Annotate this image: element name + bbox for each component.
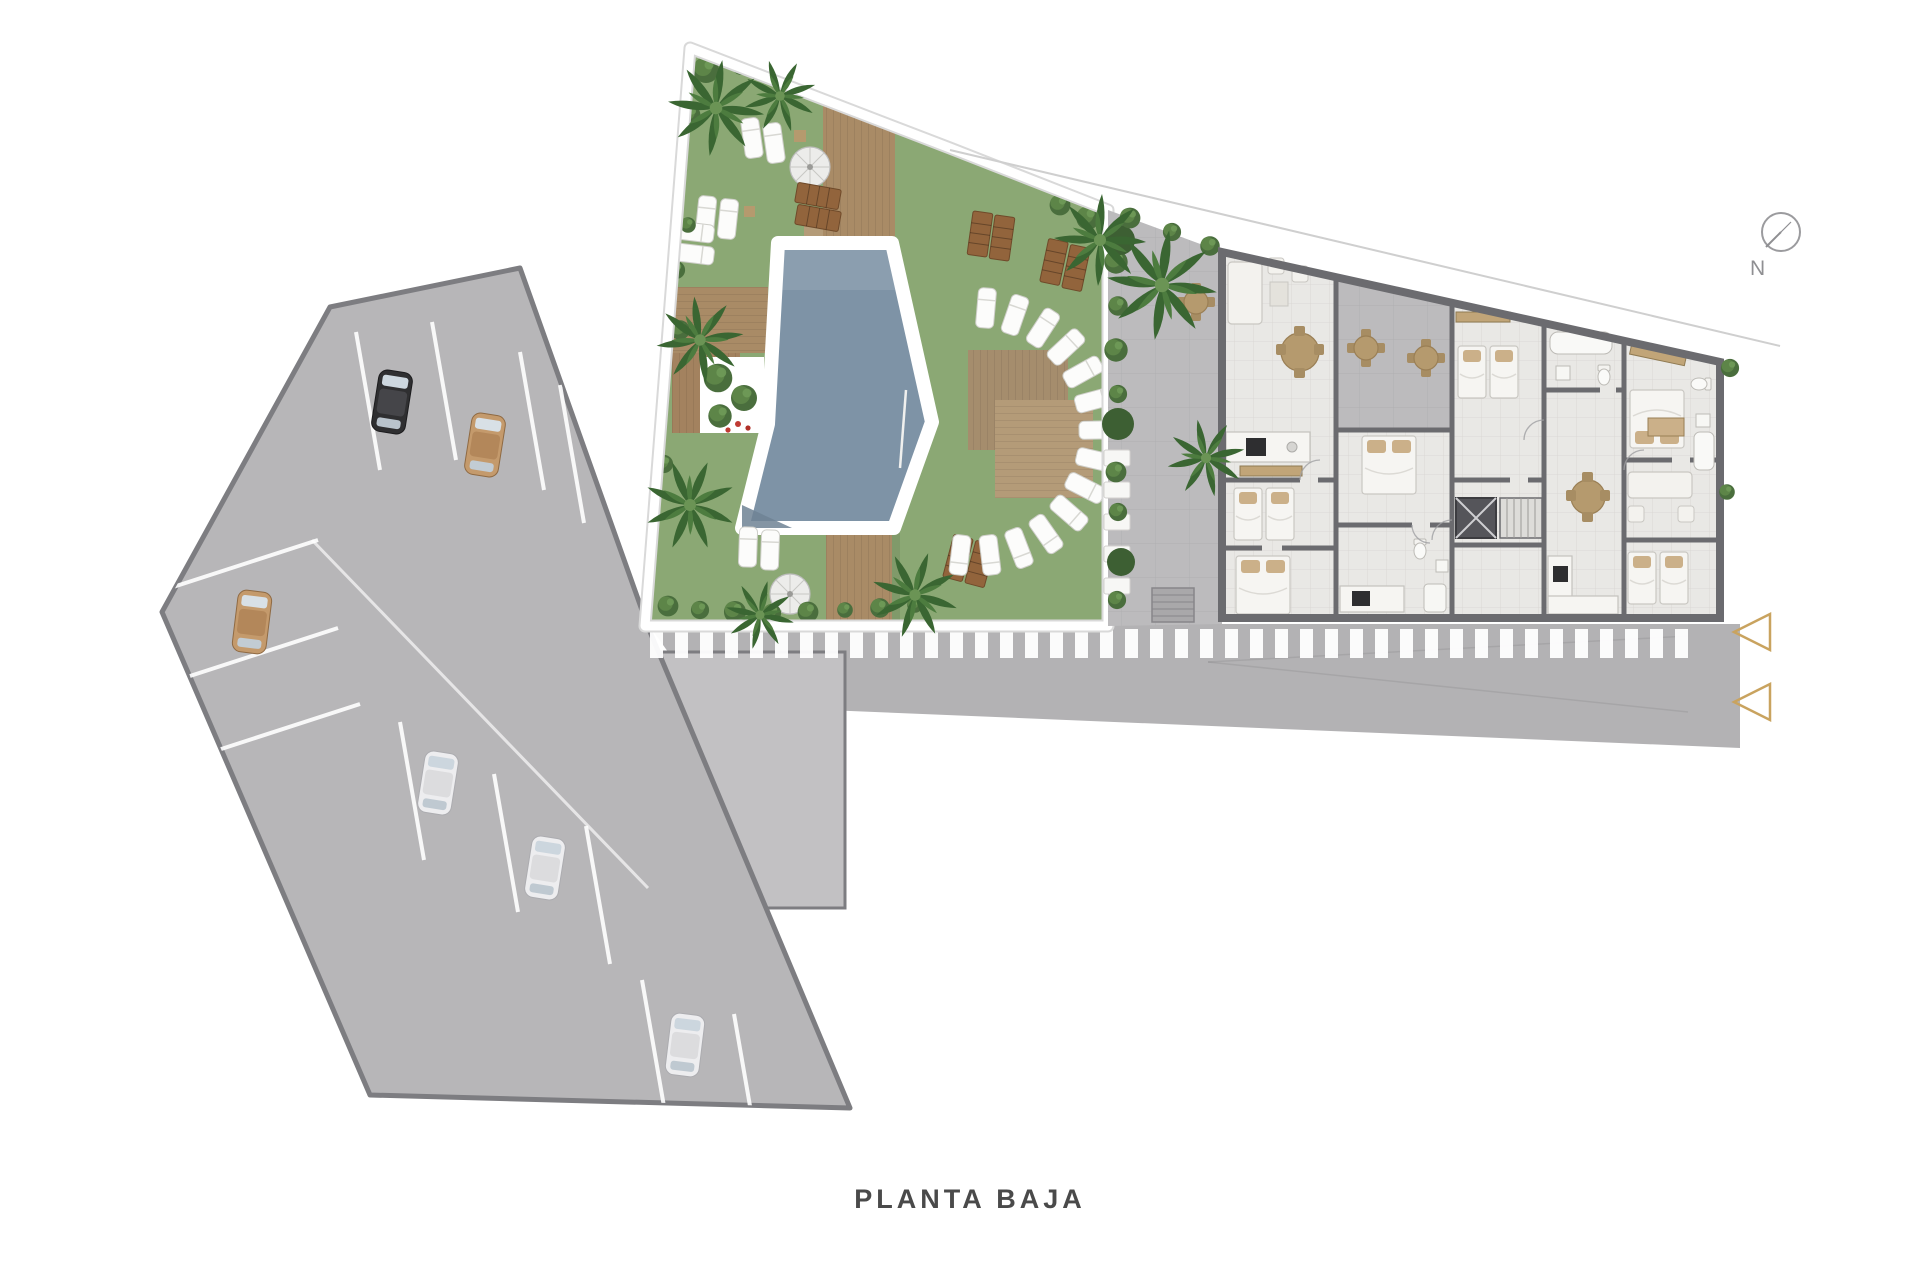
counter bbox=[1548, 596, 1618, 614]
flower bbox=[745, 425, 750, 430]
car-tan bbox=[231, 589, 272, 655]
chair bbox=[1600, 490, 1610, 501]
chair bbox=[1582, 472, 1593, 482]
kitchen-1 bbox=[1226, 432, 1310, 462]
north-label: N bbox=[1750, 257, 1765, 280]
flower bbox=[735, 421, 741, 427]
sink bbox=[1556, 366, 1570, 380]
chair bbox=[1294, 368, 1305, 378]
sink bbox=[1436, 560, 1448, 572]
tv-console bbox=[1648, 418, 1684, 436]
apartment-building bbox=[1222, 252, 1720, 618]
elevator bbox=[1456, 498, 1496, 538]
tree bbox=[1107, 548, 1135, 576]
dining-table bbox=[1571, 480, 1605, 514]
stove bbox=[1352, 591, 1370, 606]
bathtub bbox=[1694, 432, 1714, 470]
tree bbox=[1102, 408, 1134, 440]
coffee-table bbox=[1270, 282, 1288, 306]
shower bbox=[1424, 584, 1446, 612]
entry-steps bbox=[1152, 588, 1194, 622]
swimming-pool bbox=[742, 243, 932, 528]
sofa bbox=[1228, 262, 1262, 324]
pool-highlight bbox=[778, 243, 900, 290]
chair bbox=[1294, 326, 1305, 336]
compass-needle bbox=[1766, 232, 1781, 247]
car-white bbox=[664, 1012, 705, 1078]
sink bbox=[1287, 442, 1297, 452]
armchair bbox=[1628, 506, 1644, 522]
armchair bbox=[1678, 506, 1694, 522]
flower bbox=[725, 427, 730, 432]
chair bbox=[1582, 512, 1593, 522]
site-plan-canvas: N PLANTA BAJA bbox=[0, 0, 1920, 1280]
stove bbox=[1246, 438, 1266, 456]
chair bbox=[1566, 490, 1576, 501]
site-plan-drawing: N bbox=[0, 0, 1920, 1280]
compass-needle-tail bbox=[1781, 222, 1791, 232]
dining-table bbox=[1281, 333, 1319, 371]
chair bbox=[1314, 344, 1324, 355]
counter bbox=[1340, 586, 1404, 612]
side-table bbox=[744, 206, 755, 217]
kitchen-3 bbox=[1340, 586, 1404, 612]
striped-walkway bbox=[650, 629, 1690, 658]
planter-box bbox=[700, 357, 764, 433]
stairs bbox=[1500, 498, 1542, 538]
north-compass: N bbox=[1750, 213, 1800, 280]
floor-plan-title: PLANTA BAJA bbox=[820, 1184, 1120, 1215]
sofa bbox=[1628, 472, 1692, 498]
stove bbox=[1553, 566, 1568, 582]
chair bbox=[1276, 344, 1286, 355]
sink bbox=[1696, 414, 1710, 427]
side-table bbox=[794, 130, 806, 142]
